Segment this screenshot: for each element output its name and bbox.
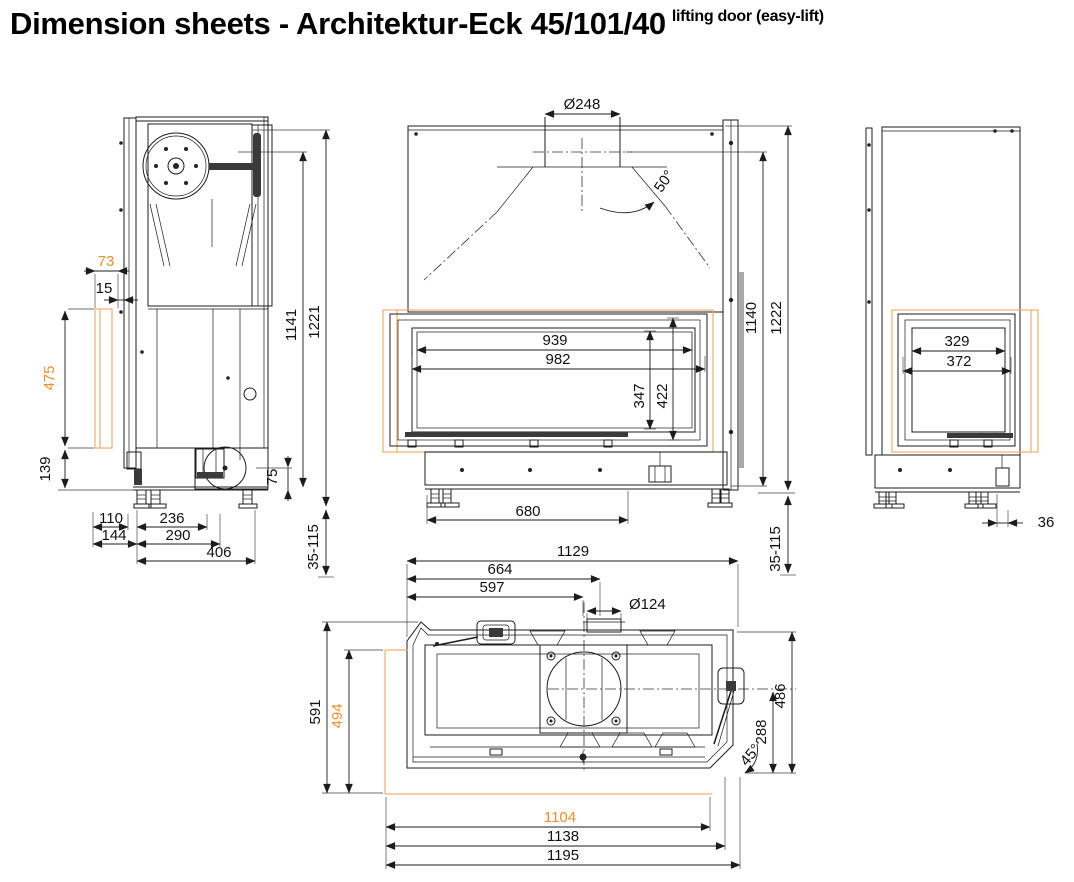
dim-front-height-total: 1222 <box>768 301 785 334</box>
dim-front-glass-height: 347 <box>631 383 648 408</box>
dimension-sheet-page: Dimension sheets - Architektur-Eck 45/10… <box>0 0 1074 882</box>
front-view: 50° <box>383 117 744 507</box>
right-feet <box>874 492 996 508</box>
dim-top-depth-total: 591 <box>307 699 324 724</box>
dim-side-glass-gap: 15 <box>96 280 113 297</box>
dim-side-plinth-height: 139 <box>37 456 54 481</box>
dim-front-foot-span: 680 <box>515 503 540 520</box>
right-view <box>866 127 1038 508</box>
dim-top-glass-width: 1104 <box>544 809 576 826</box>
dim-front-frame-height: 422 <box>654 383 671 408</box>
dim-front-glass-width: 939 <box>542 332 567 349</box>
dim-right-edge-offset: 36 <box>1038 514 1055 531</box>
dim-side-foot-inset: 110 <box>99 510 123 527</box>
dim-side-foot-span: 236 <box>159 510 184 527</box>
dim-top-width-total: 1195 <box>547 847 579 864</box>
dim-top-width-body: 1129 <box>557 543 589 560</box>
dim-side-glass-offset: 73 <box>98 253 115 270</box>
dim-front-height-glass-top: 1140 <box>743 302 760 334</box>
dim-side-depth-total: 406 <box>206 544 231 561</box>
dim-front-hood-angle: 50° <box>651 167 678 195</box>
dim-side-leveling-range: 35-115 <box>305 524 322 570</box>
wall-shadow <box>739 272 744 468</box>
glass-pane-highlight <box>95 309 112 448</box>
dim-top-flue-diameter: Ø124 <box>629 596 666 613</box>
side-view <box>95 117 272 508</box>
dim-top-glass-depth: 494 <box>329 703 346 728</box>
dim-top-frame-width: 1138 <box>547 828 579 845</box>
dim-front-leveling-range: 35-115 <box>767 526 784 572</box>
dim-top-depth-body: 486 <box>772 683 789 708</box>
dim-top-flue-edge: 597 <box>479 579 504 596</box>
door-handle-bar <box>405 432 628 437</box>
dim-front-frame-width: 982 <box>545 351 570 368</box>
dim-top-depth-center: 288 <box>753 719 770 744</box>
side-view-dimensions: 73 15 475 139 110 236 144 290 <box>37 130 334 577</box>
door-handle-bar-right <box>947 433 1013 438</box>
dim-top-flue-center: 664 <box>487 561 512 578</box>
dim-right-glass-width: 329 <box>944 333 969 350</box>
side-feet <box>134 490 257 508</box>
front-feet <box>427 489 732 507</box>
glass-pane-highlight-top <box>385 650 712 794</box>
dim-side-depth-mid: 290 <box>165 527 190 544</box>
door-highlight-right <box>892 310 1038 452</box>
dim-side-glass-height: 475 <box>41 365 58 390</box>
counterweight <box>253 133 261 197</box>
dim-right-frame-width: 372 <box>946 353 971 370</box>
hood-angle-arc <box>600 202 654 213</box>
dim-side-depth-front: 144 <box>101 527 126 544</box>
dim-side-height-mechanism: 1141 <box>283 309 300 341</box>
dim-side-flue-height: 75 <box>264 469 281 486</box>
technical-drawing: 73 15 475 139 110 236 144 290 <box>0 0 1074 882</box>
dim-front-flue-diameter: Ø248 <box>564 96 601 113</box>
dim-side-height-total: 1221 <box>306 305 323 338</box>
top-view: 45° <box>385 602 796 794</box>
lift-arm <box>209 163 253 170</box>
